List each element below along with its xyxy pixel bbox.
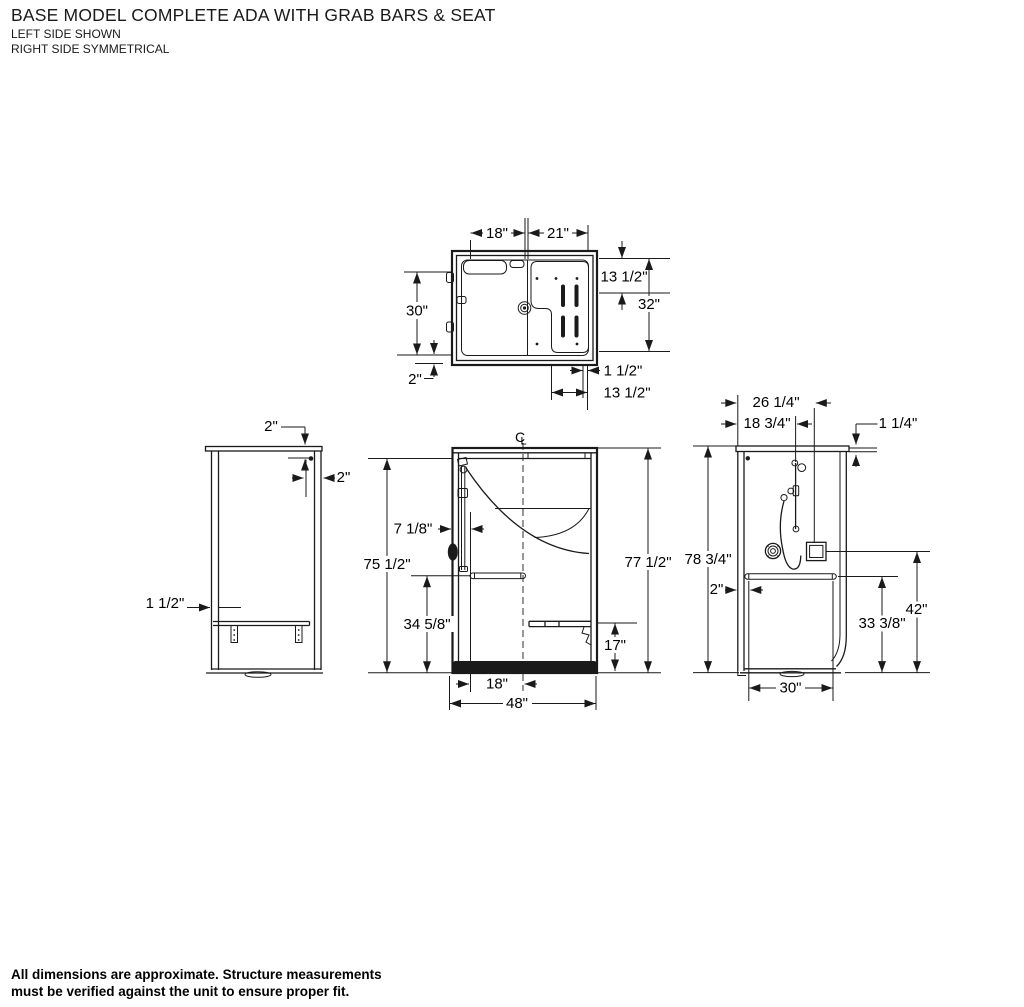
plan-view: 18" 21" 13 1/2" 32" 30" (397, 218, 670, 410)
plan-drain (518, 302, 531, 315)
plan-seat-outline (464, 261, 507, 275)
drawing-canvas: 18" 21" 13 1/2" 32" 30" (0, 0, 1024, 1007)
right-dim-bar-wall-gap: 2" (710, 581, 724, 598)
plan-dim-seat-width: 18" (486, 225, 508, 242)
left-side-view: 2" 2" 1 1/2" (146, 418, 351, 677)
right-dim-overall-height: 78 3/4" (684, 551, 731, 568)
right-view-slide-bar (788, 460, 806, 532)
front-view-base-threshold (453, 661, 598, 673)
right-dim-valve-box-offset: 26 1/4" (752, 394, 799, 411)
plan-dim-bar-offset-depth: 13 1/2" (600, 269, 647, 286)
right-view-grab-bar (745, 574, 837, 579)
front-view-grab-bar (470, 573, 526, 579)
right-view-mount-dot (746, 456, 750, 460)
note-line-2: must be verified against the unit to ens… (11, 983, 382, 1000)
right-view-walls (738, 452, 847, 677)
front-dim-seat-center: 18" (486, 676, 508, 693)
front-dim-head-offset: 7 1/8" (394, 521, 433, 538)
right-view-top-cap (736, 446, 849, 452)
left-dim-bar-from-wall: 2" (337, 469, 351, 486)
plan-dim-threshold: 2" (408, 371, 422, 388)
front-dim-inside-height: 75 1/2" (363, 556, 410, 573)
left-view-seat (213, 622, 310, 643)
plan-dim-wall-offset: 1 1/2" (604, 363, 643, 380)
front-view-centerline-symbol: C L (515, 429, 527, 448)
front-dim-seat-height: 17" (604, 637, 626, 654)
left-dim-wall-thickness: 1 1/2" (146, 595, 185, 612)
plan-dim-bar-panel-width: 13 1/2" (603, 385, 650, 402)
note-block: All dimensions are approximate. Structur… (11, 966, 382, 1000)
left-view-walls (206, 451, 323, 677)
right-view-soap-box (807, 542, 827, 560)
front-view-spray-arcs (466, 468, 591, 554)
left-dim-bar-from-top: 2" (264, 418, 278, 435)
right-dim-box-height: 42" (905, 601, 927, 618)
centerline-l: L (520, 436, 526, 448)
note-line-1: All dimensions are approximate. Structur… (11, 966, 382, 983)
front-dim-overall-height: 77 1/2" (624, 554, 671, 571)
front-view-seat (529, 621, 591, 645)
right-dim-bar-length: 30" (779, 680, 801, 697)
front-view-valve-knob (448, 543, 458, 560)
front-dim-bar-height: 34 5/8" (403, 616, 450, 633)
right-dim-flange: 1 1/4" (879, 415, 918, 432)
front-view-shell (453, 448, 598, 673)
left-view-top-cap (206, 447, 323, 452)
front-dim-overall-width: 48" (506, 695, 528, 712)
right-view-valve (765, 543, 780, 558)
plan-grab-bar-panel (531, 262, 589, 353)
plan-dim-entry-width: 21" (547, 225, 569, 242)
plan-dim-left-depth: 30" (406, 303, 428, 320)
plan-mount-dots (536, 277, 579, 345)
plan-dim-inside-depth: 32" (638, 296, 660, 313)
right-dim-bar-height: 33 3/8" (858, 615, 905, 632)
plan-grab-bar-slots (561, 285, 579, 338)
plan-ledge-tab (510, 261, 524, 268)
right-side-view: 26 1/4" 18 3/4" 1 1/4" 78 3/4" 2" (680, 394, 932, 701)
front-view: C L 7 1/8" 75 1/2" 77 1/2" (360, 429, 674, 712)
plan-dimensions: 18" 21" 13 1/2" 32" 30" (397, 218, 670, 410)
right-dim-slide-bar-offset: 18 3/4" (743, 415, 790, 432)
